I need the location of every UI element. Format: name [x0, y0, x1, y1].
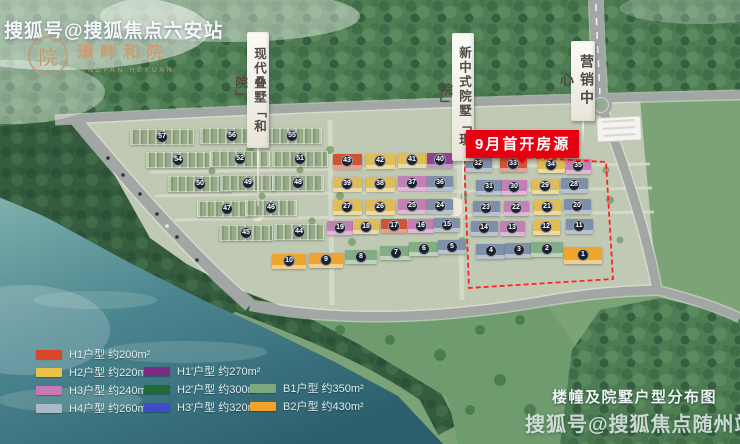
- building-14: 14: [471, 221, 498, 236]
- building-10: 10: [272, 254, 306, 269]
- badge-pointer-icon: [514, 153, 530, 164]
- building-5: 5: [438, 240, 466, 254]
- legend-color-swatch: [250, 384, 276, 393]
- legend-color-swatch: [36, 368, 62, 377]
- building-8: 8: [345, 250, 377, 264]
- logo-name: 璟畔和院: [77, 38, 174, 63]
- building-21: 21: [534, 200, 561, 215]
- building-42: 42: [366, 154, 395, 169]
- legend-item: B2户型 约430m²: [250, 397, 364, 415]
- building-number-badge: 34: [545, 159, 557, 171]
- banner-pole: [582, 119, 584, 145]
- building-number-badge: 4: [485, 245, 497, 257]
- building-4: 4: [476, 244, 506, 259]
- building-number-badge: 39: [341, 178, 353, 190]
- legend-label: H4户型 约260m²: [69, 400, 150, 416]
- legend-label: B2户型 约430m²: [283, 398, 364, 414]
- building-number-badge: 42: [374, 155, 386, 167]
- legend-column-3: B1户型 约350m²B2户型 约430m²: [250, 379, 364, 415]
- legend-color-swatch: [36, 386, 62, 395]
- building-number-badge: 31: [483, 181, 495, 193]
- building-number-badge: 29: [539, 180, 551, 192]
- building-number-badge: 9: [320, 254, 332, 266]
- building-number-badge: 6: [418, 243, 430, 255]
- building-number-badge: 7: [390, 247, 402, 259]
- building-7: 7: [380, 246, 412, 260]
- building-57: 57: [130, 129, 194, 145]
- legend-item: H3户型 约240m²: [36, 381, 150, 399]
- building-17: 17: [381, 219, 407, 233]
- building-number-badge: 2: [541, 243, 553, 255]
- building-51: 51: [272, 151, 328, 167]
- building-number-badge: 43: [341, 155, 353, 167]
- building-number-badge: 56: [226, 130, 238, 142]
- building-number-badge: 25: [406, 200, 418, 212]
- building-29: 29: [532, 179, 559, 194]
- legend-label: H3'户型 约320m²: [177, 399, 260, 415]
- building-number-badge: 15: [441, 219, 453, 231]
- building-number-badge: 3: [513, 244, 525, 256]
- building-38: 38: [366, 177, 395, 192]
- building-26: 26: [366, 200, 395, 215]
- building-52: 52: [210, 151, 270, 167]
- building-number-badge: 22: [510, 202, 522, 214]
- building-54: 54: [146, 152, 210, 168]
- legend-color-swatch: [36, 350, 62, 359]
- building-36: 36: [427, 176, 453, 191]
- building-24: 24: [427, 199, 453, 214]
- logo-seal-icon: 院: [28, 36, 68, 76]
- building-20: 20: [564, 199, 591, 214]
- building-number-badge: 16: [415, 220, 427, 232]
- banner-heyuan: 现代叠墅「和院」: [247, 32, 269, 148]
- building-number-badge: 55: [286, 130, 298, 142]
- building-number-badge: 41: [406, 154, 418, 166]
- building-1: 1: [564, 247, 602, 264]
- building-number-badge: 8: [355, 251, 367, 263]
- building-41: 41: [398, 153, 427, 168]
- legend-color-swatch: [144, 367, 170, 376]
- banner-pole: [257, 146, 259, 206]
- building-number-badge: 11: [573, 220, 585, 232]
- legend-item: H1'户型 约270m²: [144, 362, 260, 380]
- building-22: 22: [504, 201, 529, 216]
- building-3: 3: [505, 243, 533, 258]
- logo-seal-char: 院: [38, 43, 57, 70]
- building-number-badge: 30: [508, 181, 520, 193]
- building-13: 13: [500, 221, 525, 236]
- building-49: 49: [220, 175, 276, 191]
- building-30: 30: [502, 180, 527, 195]
- building-number-badge: 1: [577, 249, 589, 261]
- building-45: 45: [219, 225, 273, 241]
- legend-item: H4户型 约260m²: [36, 399, 150, 417]
- building-35: 35: [566, 159, 591, 174]
- building-9: 9: [309, 253, 343, 268]
- building-number-badge: 20: [571, 200, 583, 212]
- building-number-badge: 28: [568, 179, 580, 191]
- legend-item: H3'户型 约320m²: [144, 398, 260, 416]
- legend-item: H1户型 约200m²: [36, 345, 150, 363]
- site-plan-image: 5756555452515049484746454443424140393837…: [0, 0, 740, 444]
- building-number-badge: 38: [374, 178, 386, 190]
- building-25: 25: [398, 199, 427, 214]
- building-39: 39: [333, 177, 362, 192]
- legend-color-swatch: [144, 403, 170, 412]
- building-number-badge: 17: [388, 220, 400, 232]
- building-number-badge: 23: [480, 202, 492, 214]
- building-number-badge: 51: [294, 153, 306, 165]
- building-number-badge: 47: [221, 203, 233, 215]
- logo-subtitle: JINGPAN HEYUAN: [77, 67, 174, 74]
- building-16: 16: [408, 219, 434, 233]
- legend-label: B1户型 约350m²: [283, 380, 364, 396]
- building-number-badge: 21: [541, 201, 553, 213]
- building-11: 11: [566, 219, 593, 234]
- legend-label: H2户型 约220m²: [69, 364, 150, 380]
- legend-column-2: H1'户型 约270m²H2'户型 约300m²H3'户型 约320m²: [144, 362, 260, 416]
- legend-label: H1'户型 约270m²: [177, 363, 260, 379]
- watermark-bottom: 搜狐号@搜狐焦点随州站: [525, 408, 740, 437]
- building-40: 40: [427, 153, 453, 168]
- brand-logo: 院 璟畔和院 JINGPAN HEYUAN: [28, 36, 174, 76]
- legend-item: H2'户型 约300m²: [144, 380, 260, 398]
- building-number-badge: 54: [172, 154, 184, 166]
- building-number-badge: 35: [572, 160, 584, 172]
- building-number-badge: 13: [506, 222, 518, 234]
- building-18: 18: [353, 220, 379, 234]
- building-6: 6: [409, 242, 439, 256]
- building-28: 28: [561, 178, 588, 193]
- legend-color-swatch: [250, 402, 276, 411]
- building-number-badge: 57: [156, 131, 168, 143]
- building-43: 43: [333, 154, 362, 169]
- building-37: 37: [398, 176, 427, 191]
- building-number-badge: 19: [334, 222, 346, 234]
- building-number-badge: 10: [283, 255, 295, 267]
- building-55: 55: [262, 128, 322, 144]
- legend-item: H2户型 约220m²: [36, 363, 150, 381]
- building-number-badge: 44: [293, 226, 305, 238]
- building-number-badge: 27: [341, 201, 353, 213]
- banner-sales-center: 营销中心: [571, 41, 595, 121]
- building-number-badge: 18: [360, 221, 372, 233]
- legend-color-swatch: [36, 404, 62, 413]
- building-number-badge: 37: [406, 177, 418, 189]
- legend-label: H1户型 约200m²: [69, 346, 150, 362]
- legend-item: B1户型 约350m²: [250, 379, 364, 397]
- legend-label: H2'户型 约300m²: [177, 381, 260, 397]
- building-12: 12: [533, 220, 560, 235]
- legend-column-1: H1户型 约200m²H2户型 约220m²H3户型 约240m²H4户型 约2…: [36, 345, 150, 417]
- building-15: 15: [434, 218, 460, 232]
- building-27: 27: [333, 200, 362, 215]
- building-number-badge: 12: [540, 221, 552, 233]
- building-number-badge: 5: [446, 241, 458, 253]
- building-number-badge: 48: [292, 177, 304, 189]
- legend-label: H3户型 约240m²: [69, 382, 150, 398]
- building-number-badge: 52: [234, 153, 246, 165]
- building-31: 31: [476, 180, 503, 195]
- building-number-badge: 14: [478, 222, 490, 234]
- legend-color-swatch: [144, 385, 170, 394]
- building-46: 46: [245, 200, 297, 216]
- building-48: 48: [272, 175, 324, 191]
- building-number-badge: 40: [434, 154, 446, 166]
- building-number-badge: 50: [194, 178, 206, 190]
- building-34: 34: [538, 158, 565, 173]
- building-number-badge: 46: [265, 202, 277, 214]
- building-number-badge: 45: [240, 227, 252, 239]
- building-number-badge: 49: [242, 177, 254, 189]
- building-2: 2: [531, 242, 563, 257]
- building-44: 44: [274, 224, 324, 240]
- building-number-badge: 36: [434, 177, 446, 189]
- banner-pole: [462, 158, 464, 214]
- building-number-badge: 24: [434, 200, 446, 212]
- map-title: 楼幢及院墅户型分布图: [552, 386, 717, 407]
- building-23: 23: [473, 201, 500, 216]
- building-19: 19: [327, 221, 353, 235]
- building-number-badge: 26: [374, 201, 386, 213]
